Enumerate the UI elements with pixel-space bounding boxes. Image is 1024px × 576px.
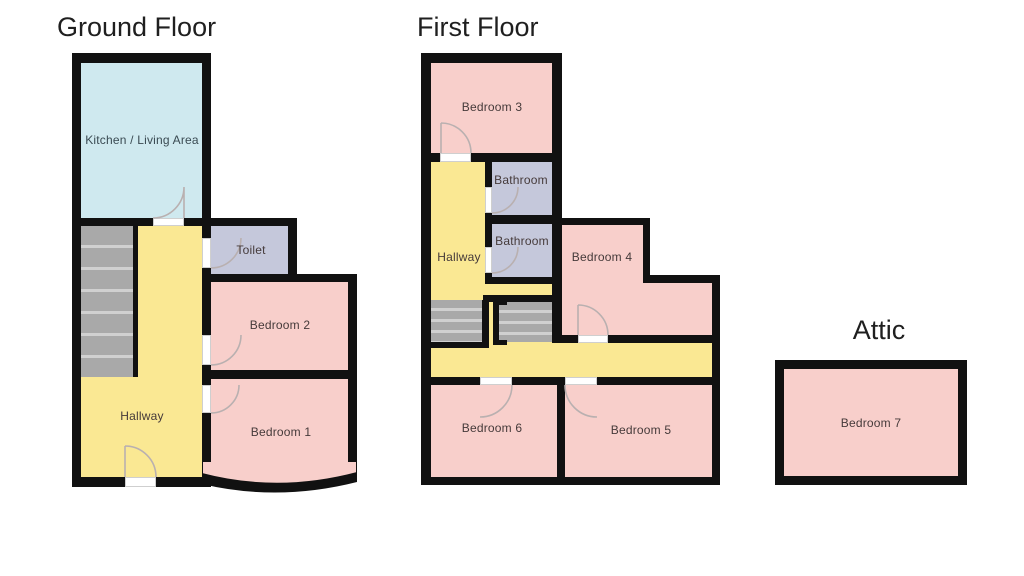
ff-stair-flight-left — [431, 300, 482, 342]
wall-bedroom4-right-upper — [643, 218, 650, 283]
wall-corridor-bottom-3 — [597, 377, 720, 385]
room-bathroom-bottom — [492, 224, 552, 277]
label-bathroom-top: Bathroom — [494, 173, 548, 187]
label-toilet: Toilet — [236, 243, 265, 257]
label-bedroom1: Bedroom 1 — [251, 425, 312, 439]
door-gap-toilet — [202, 238, 211, 268]
door-gap-kitchen — [153, 218, 184, 226]
wall-corridor-bottom-1 — [421, 377, 480, 385]
gf-staircase — [81, 226, 133, 377]
wall-kitchen-bottom-left — [72, 218, 153, 226]
label-bedroom2: Bedroom 2 — [250, 318, 311, 332]
wall-gf-bottom-left — [72, 477, 125, 487]
label-bedroom5: Bedroom 5 — [611, 423, 672, 437]
label-gf-hallway: Hallway — [120, 409, 163, 423]
wall-gf-bottom-mid — [156, 477, 211, 487]
wall-ff-bottom — [421, 477, 720, 485]
wall-bedroom5-6-divider — [557, 377, 565, 485]
wall-stair-newel-top — [493, 300, 507, 305]
wall-bedroom1-2-divider — [202, 370, 348, 379]
wall-gf-bedrooms-right — [348, 274, 357, 477]
ff-stair-flight-right — [499, 302, 553, 342]
ground-floor-title: Ground Floor — [57, 12, 216, 43]
door-gap-gf-entrance — [125, 477, 156, 487]
room-bedroom4-main — [562, 225, 643, 335]
room-bedroom4-ext — [643, 283, 712, 335]
label-bathroom-bottom: Bathroom — [495, 234, 549, 248]
wall-stair-flight-left-right — [482, 300, 489, 348]
wall-kitchen-right — [202, 53, 211, 226]
wall-bathroom-bottom — [485, 277, 562, 284]
first-floor-title: First Floor — [417, 12, 539, 43]
wall-bedroom4-top — [553, 218, 650, 225]
door-gap-bathroom-top — [485, 187, 492, 213]
label-bedroom7: Bedroom 7 — [841, 416, 902, 430]
wall-ff-top — [421, 53, 562, 63]
wall-bathrooms-divider — [485, 215, 562, 224]
door-gap-bedroom4 — [578, 335, 608, 343]
wall-stair-newel — [493, 300, 499, 345]
room-ff-hallway — [431, 162, 485, 300]
label-bedroom3: Bedroom 3 — [462, 100, 523, 114]
wall-bedroom4-bottom — [553, 335, 712, 343]
door-gap-bedroom3 — [440, 153, 471, 162]
floorplan-canvas: Ground Floor Kitchen / Living Area Toile… — [0, 0, 1024, 576]
door-gap-bedroom1 — [202, 385, 211, 413]
wall-ff-left — [421, 53, 431, 485]
wall-gf-left — [72, 53, 81, 487]
wall-kitchen-bottom-right — [184, 218, 297, 226]
door-gap-bedroom6 — [480, 377, 512, 385]
room-bathroom-top — [492, 162, 552, 215]
door-gap-bedroom2 — [202, 335, 211, 365]
wall-bedroom4-step — [643, 275, 720, 283]
door-gap-bedroom5 — [565, 377, 597, 385]
gf-stair-rail-wall — [133, 226, 138, 377]
wall-stair-flight-left-bottom — [431, 342, 489, 348]
attic-title: Attic — [853, 315, 906, 346]
label-ff-hallway: Hallway — [437, 250, 480, 264]
wall-toilet-right — [288, 218, 297, 282]
label-kitchen-living: Kitchen / Living Area — [85, 133, 199, 147]
wall-gf-top — [72, 53, 211, 63]
label-bedroom6: Bedroom 6 — [462, 421, 523, 435]
wall-stair-newel-bottom — [493, 340, 507, 345]
label-bedroom4: Bedroom 4 — [572, 250, 633, 264]
wall-toilet-bottom — [202, 274, 357, 282]
door-gap-bathroom-bottom — [485, 247, 492, 273]
